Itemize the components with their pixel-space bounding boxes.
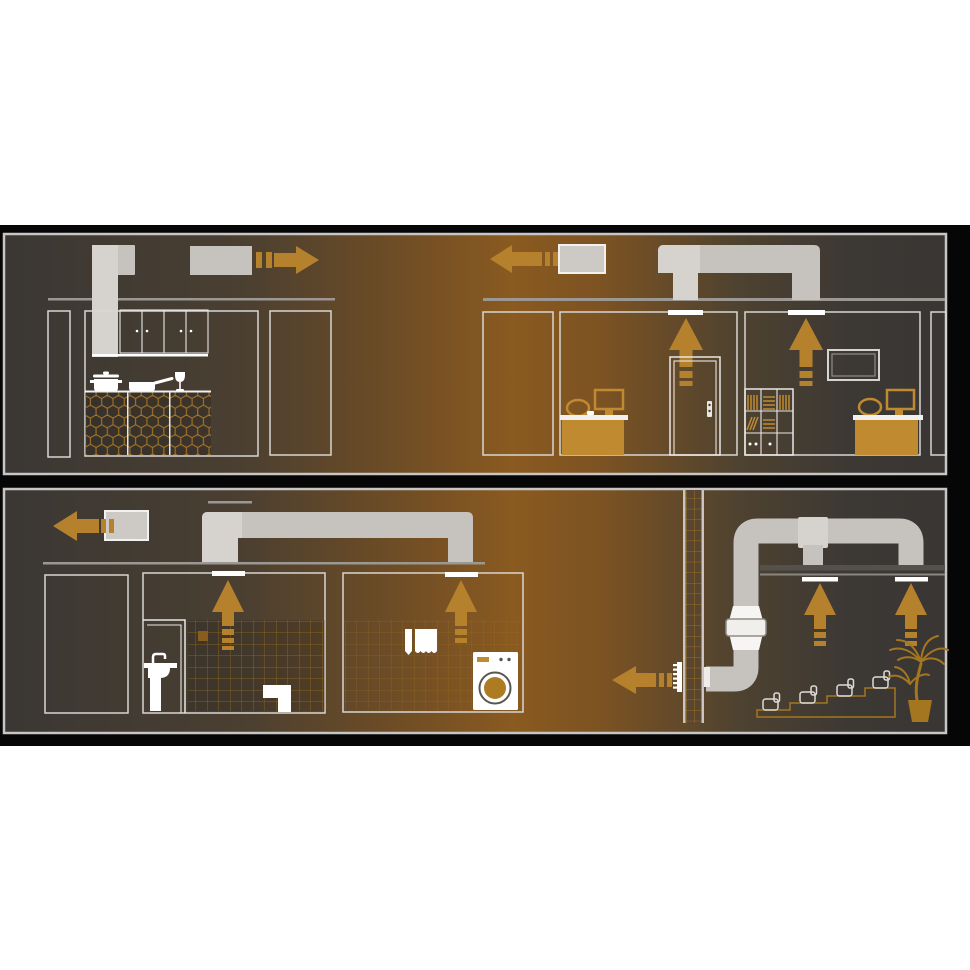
mouse — [587, 411, 594, 415]
diagram-svg — [0, 0, 970, 970]
hex-tile-counter — [85, 391, 211, 456]
washing-machine-icon — [473, 652, 518, 710]
desk — [562, 420, 624, 455]
ceiling-line — [48, 298, 335, 301]
towels-icon — [405, 629, 437, 655]
ceiling-vent — [668, 310, 703, 315]
ceiling-vent — [212, 571, 245, 576]
ventilation-diagram — [0, 0, 970, 970]
top-panel — [4, 234, 946, 474]
kitchen-exhaust-fan — [190, 246, 252, 275]
chimney-shaft — [683, 490, 704, 723]
ceiling-vent — [445, 572, 478, 577]
tiled-wall — [188, 620, 325, 711]
roof-line — [208, 501, 252, 504]
ceiling-vent — [895, 577, 928, 582]
ceiling-line — [43, 562, 485, 565]
bottom-panel — [4, 489, 948, 733]
suspended-ceiling — [760, 565, 945, 576]
inline-duct-fan — [726, 606, 766, 650]
ceiling-vent — [788, 310, 825, 315]
desk — [855, 420, 918, 455]
ceiling-line — [483, 298, 945, 301]
ceiling-vent — [802, 577, 838, 582]
office-exhaust-fan — [559, 245, 605, 273]
